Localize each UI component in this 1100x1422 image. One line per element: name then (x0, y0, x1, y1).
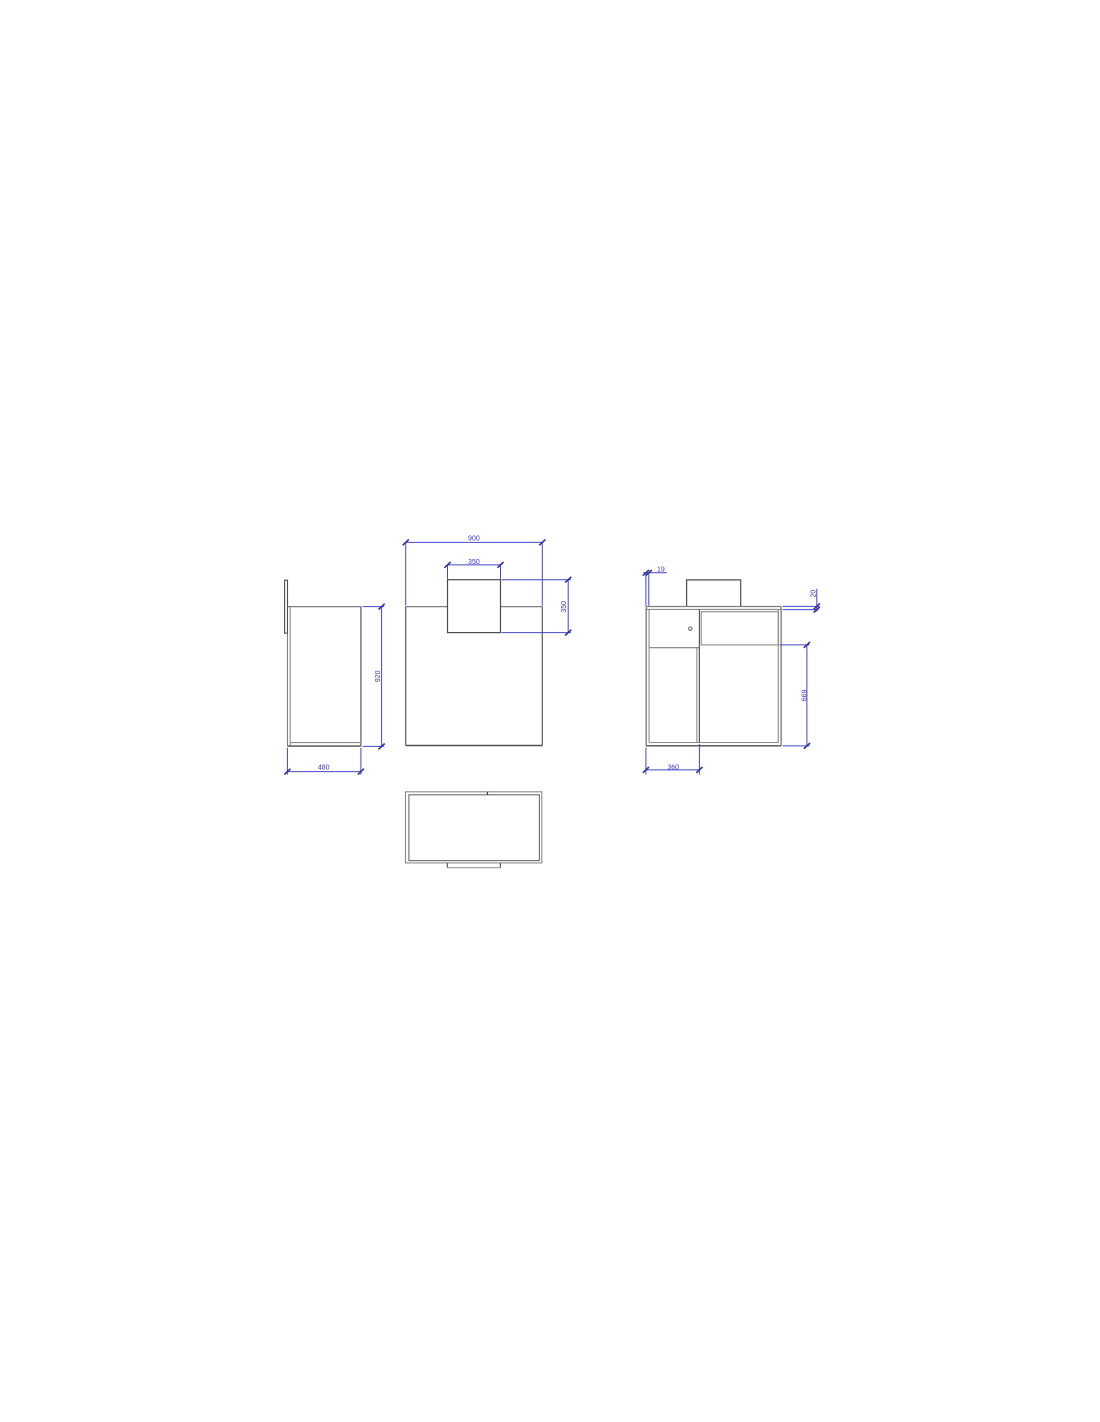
svg-text:350: 350 (468, 559, 480, 566)
svg-text:669: 669 (801, 689, 808, 701)
svg-text:900: 900 (468, 536, 480, 543)
svg-text:920: 920 (375, 670, 382, 682)
svg-text:350: 350 (561, 601, 568, 613)
svg-text:20: 20 (810, 590, 817, 598)
svg-text:480: 480 (318, 765, 330, 772)
svg-text:360: 360 (667, 764, 679, 771)
svg-text:19: 19 (657, 566, 665, 573)
